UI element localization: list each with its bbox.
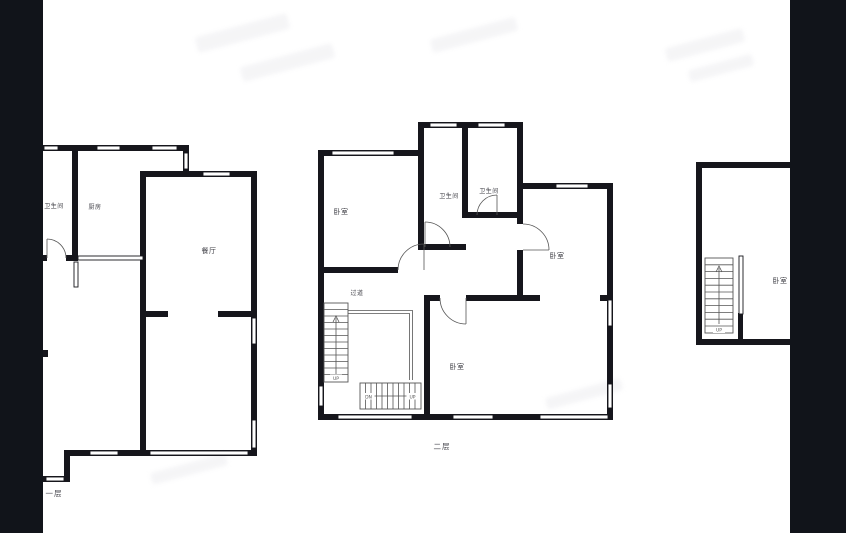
room-label-bedroom-south-f2: 卧室	[450, 362, 465, 371]
floor2-plan: UP DN UP	[318, 122, 613, 451]
floor3-staircase: UP	[705, 258, 733, 334]
stair-up-label-left-flight: UP	[333, 376, 339, 382]
floor-label-f1: 一层	[46, 489, 63, 498]
room-label-bedroom-nw-f2: 卧室	[334, 207, 349, 216]
room-label-bathroom-mid-f2: 卫生间	[439, 192, 459, 200]
room-label-bathroom-right-f2: 卫生间	[479, 187, 499, 195]
room-label-hallway-f2: 过道	[350, 289, 363, 297]
floorplan-image: 卫生间 厨房 餐厅 一层	[0, 0, 846, 533]
floor-label-f2: 二层	[434, 442, 451, 451]
stair-up-label-bottom-flight: UP	[409, 395, 415, 401]
floor2-staircase: UP DN UP	[324, 303, 421, 409]
floor3-plan: UP 卧室	[696, 162, 790, 345]
floorplan-drawing: 卫生间 厨房 餐厅 一层	[0, 0, 846, 533]
room-label-kitchen-f1: 厨房	[88, 203, 101, 211]
room-label-dining-f1: 餐厅	[202, 246, 217, 255]
left-black-bar	[0, 0, 43, 533]
stair-up-label-f3: UP	[716, 328, 722, 334]
floor2-walls	[318, 122, 613, 420]
floor1-walls	[43, 145, 257, 482]
floor1-doors	[47, 239, 66, 258]
room-label-bedroom-east-f2: 卧室	[550, 251, 565, 260]
room-label-bathroom-f1: 卫生间	[44, 202, 64, 210]
floor3-walls	[696, 162, 790, 345]
room-label-bedroom-f3: 卧室	[773, 276, 788, 285]
floor3-railing	[739, 256, 743, 314]
stair-dn-label-bottom-flight: DN	[365, 395, 372, 401]
floor1-plan: 卫生间 厨房 餐厅 一层	[43, 145, 257, 498]
right-black-bar	[790, 0, 846, 533]
